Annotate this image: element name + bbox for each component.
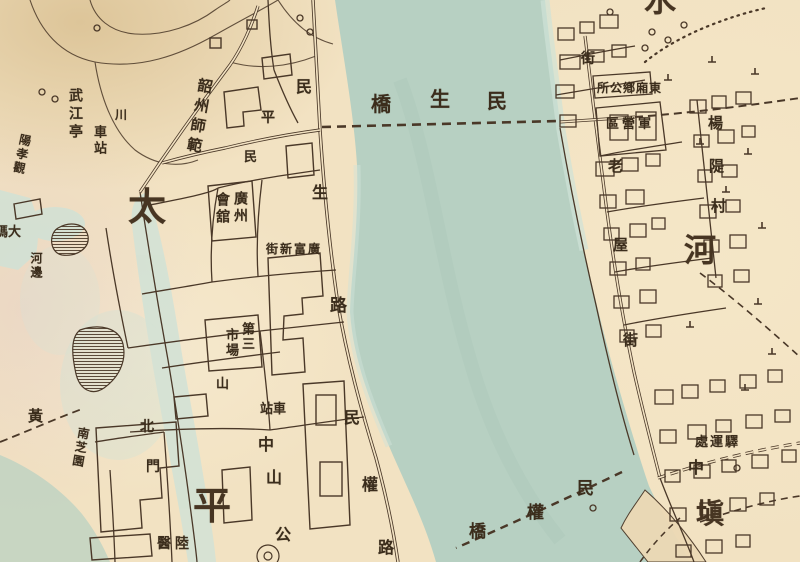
label-yangdi-village-3: 村 bbox=[711, 199, 726, 214]
map-geometry bbox=[0, 0, 800, 562]
label-riverside: 河邊 bbox=[30, 252, 42, 280]
label-dongxiang-township-office: 所公鄕廂東 bbox=[597, 82, 662, 94]
label-laowu-street-1: 老 bbox=[608, 159, 623, 174]
label-district-tai: 太 bbox=[128, 188, 166, 226]
label-transport-office: 處運驛 bbox=[695, 436, 740, 449]
label-minsheng-bridge-3: 民 bbox=[487, 91, 507, 111]
label-zhong-mid: 中 bbox=[688, 460, 704, 476]
label-zhongshan-park-1: 中 bbox=[258, 437, 274, 453]
label-district-shui: 水 bbox=[644, 0, 676, 16]
label-district-ping: 平 bbox=[193, 487, 231, 525]
label-minsheng-bridge-2: 生 bbox=[430, 89, 450, 109]
label-guangfu-new-street: 街新富廣 bbox=[266, 243, 322, 255]
label-district-tian: 塡 bbox=[696, 500, 724, 528]
label-ping-fragment: 平 bbox=[261, 111, 275, 125]
label-minquan-bridge-3: 橋 bbox=[469, 524, 486, 541]
label-minquan-bridge-1: 民 bbox=[577, 481, 594, 498]
label-yangdi-village-2: 隄 bbox=[709, 159, 724, 174]
label-zhongshan-park-3: 公 bbox=[275, 527, 291, 543]
label-minsheng-bridge-1: 橋 bbox=[371, 94, 391, 114]
label-station-park: 站車 bbox=[260, 403, 286, 416]
label-min-fragment: 民 bbox=[244, 151, 257, 164]
label-guangzhou-guildhall-right: 廣州 bbox=[233, 191, 247, 225]
label-third-market-right: 第三 bbox=[240, 322, 253, 352]
label-army-hospital: 醫陸 bbox=[157, 537, 193, 551]
label-chuan: 川 bbox=[115, 109, 127, 121]
label-station-west: 車站 bbox=[92, 125, 105, 157]
historical-city-map: 太 平 水 河 塡 中 民 生 路 民 權 路 橋 生 民 民 權 橋 老 屋 … bbox=[0, 0, 800, 562]
label-minsheng-road-1: 民 bbox=[296, 79, 312, 95]
label-minquan-road-2: 權 bbox=[362, 477, 378, 493]
label-wujiang-pavilion: 武江亭 bbox=[68, 88, 82, 142]
label-north-gate-1: 北 bbox=[140, 420, 154, 434]
label-zhongshan-park-2: 山 bbox=[266, 470, 282, 486]
label-minquan-road-1: 民 bbox=[344, 410, 360, 426]
label-laowu-street-2: 屋 bbox=[613, 238, 628, 253]
label-shan-fragment: 山 bbox=[216, 378, 229, 391]
label-yangdi-village-1: 楊 bbox=[708, 116, 723, 131]
label-minquan-road-3: 路 bbox=[378, 540, 394, 556]
label-minquan-bridge-2: 權 bbox=[527, 505, 544, 522]
label-huang: 黃 bbox=[28, 409, 43, 424]
label-third-market-left: 市場 bbox=[224, 328, 237, 358]
label-minsheng-road-2: 生 bbox=[312, 185, 328, 201]
label-north-gate-2: 門 bbox=[146, 460, 160, 474]
label-laowu-street-3: 街 bbox=[623, 333, 638, 348]
park-flowerbed bbox=[257, 545, 279, 562]
label-street-ne: 街 bbox=[581, 52, 595, 66]
label-military-camp-zone: 區營軍 bbox=[606, 118, 654, 131]
mound-icons bbox=[664, 56, 776, 390]
label-minsheng-road-3: 路 bbox=[330, 298, 347, 315]
label-district-he: 河 bbox=[684, 234, 716, 266]
label-guangzhou-guildhall-left: 會舘 bbox=[215, 192, 229, 226]
label-big-wharf: 碼大 bbox=[0, 226, 21, 239]
